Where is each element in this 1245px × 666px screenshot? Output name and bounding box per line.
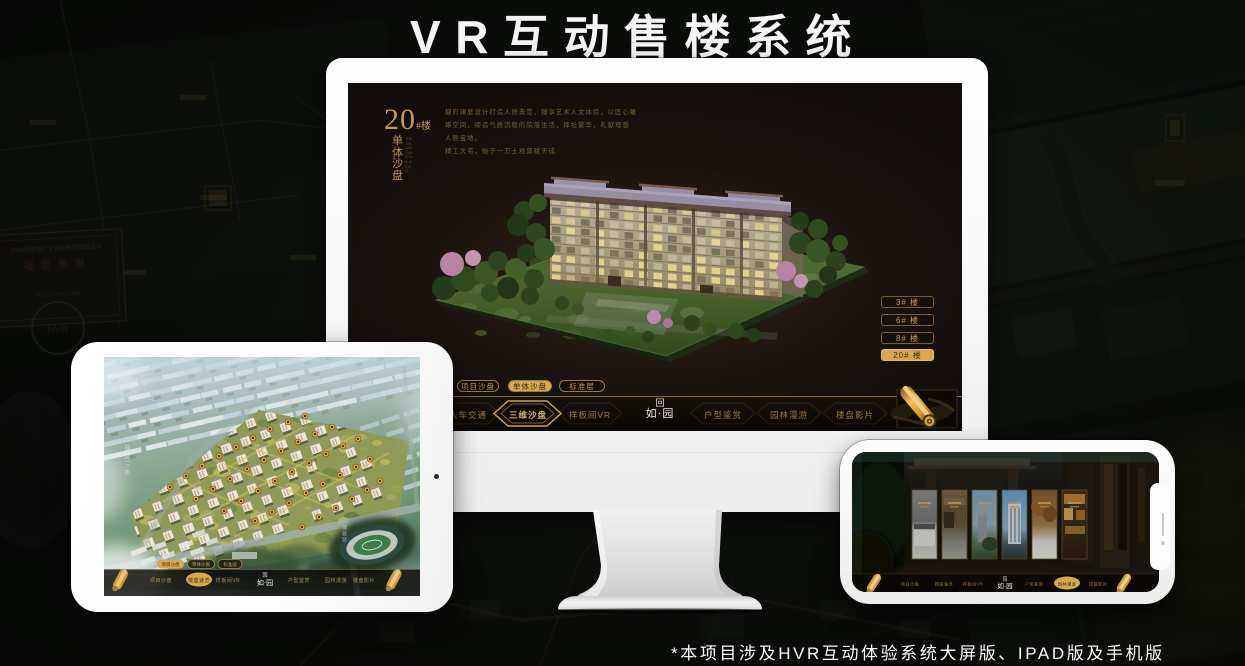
svg-text:回: 回 [262,573,267,579]
svg-text:楼座速览: 楼座速览 [188,577,210,584]
svg-text:项目沙盘: 项目沙盘 [901,581,919,588]
svg-text:标准层: 标准层 [223,561,237,568]
svg-text:项目沙盘: 项目沙盘 [162,561,180,568]
svg-text:楼盘影片: 楼盘影片 [353,577,375,584]
svg-text:单体沙盘: 单体沙盘 [192,561,210,568]
svg-text:HVR: HVR [47,325,68,336]
svg-text:博雅路: 博雅路 [341,524,347,543]
svg-text:户型鉴赏: 户型鉴赏 [1025,581,1043,588]
svg-text:园林漫游: 园林漫游 [1058,581,1077,588]
svg-text:样板间VR: 样板间VR [963,581,983,588]
svg-text:两区三街: 两区三街 [123,445,130,477]
svg-text:园林漫游: 园林漫游 [325,577,347,584]
svg-text:楼盘影片: 楼盘影片 [1089,581,1107,588]
svg-text:楼座速览: 楼座速览 [935,581,953,588]
svg-text:项目沙盘: 项目沙盘 [150,577,172,584]
svg-text:如·园: 如·园 [257,578,273,587]
svg-text:如·园: 如·园 [997,581,1012,590]
svg-text:样板间VR: 样板间VR [216,577,240,584]
svg-text:户型鉴赏: 户型鉴赏 [288,577,310,584]
